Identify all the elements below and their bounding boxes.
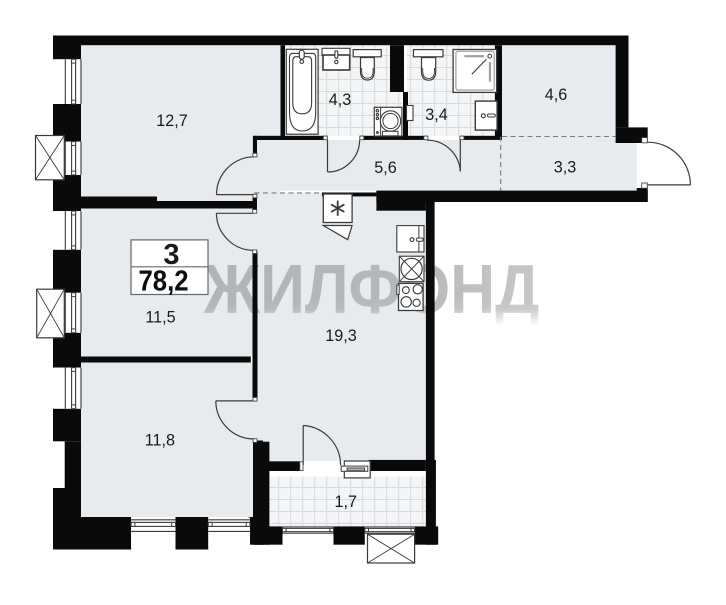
svg-text:19,3: 19,3 xyxy=(325,327,357,345)
svg-text:11,5: 11,5 xyxy=(145,309,175,327)
svg-text:1,7: 1,7 xyxy=(334,493,357,511)
svg-text:4,3: 4,3 xyxy=(329,91,352,109)
svg-text:3,3: 3,3 xyxy=(554,159,577,177)
svg-text:3,4: 3,4 xyxy=(425,106,448,124)
svg-text:5,6: 5,6 xyxy=(374,159,397,177)
svg-text:12,7: 12,7 xyxy=(156,112,188,130)
svg-text:11,8: 11,8 xyxy=(145,432,175,450)
svg-text:4,6: 4,6 xyxy=(545,86,568,104)
svg-text:78,2: 78,2 xyxy=(139,266,189,298)
